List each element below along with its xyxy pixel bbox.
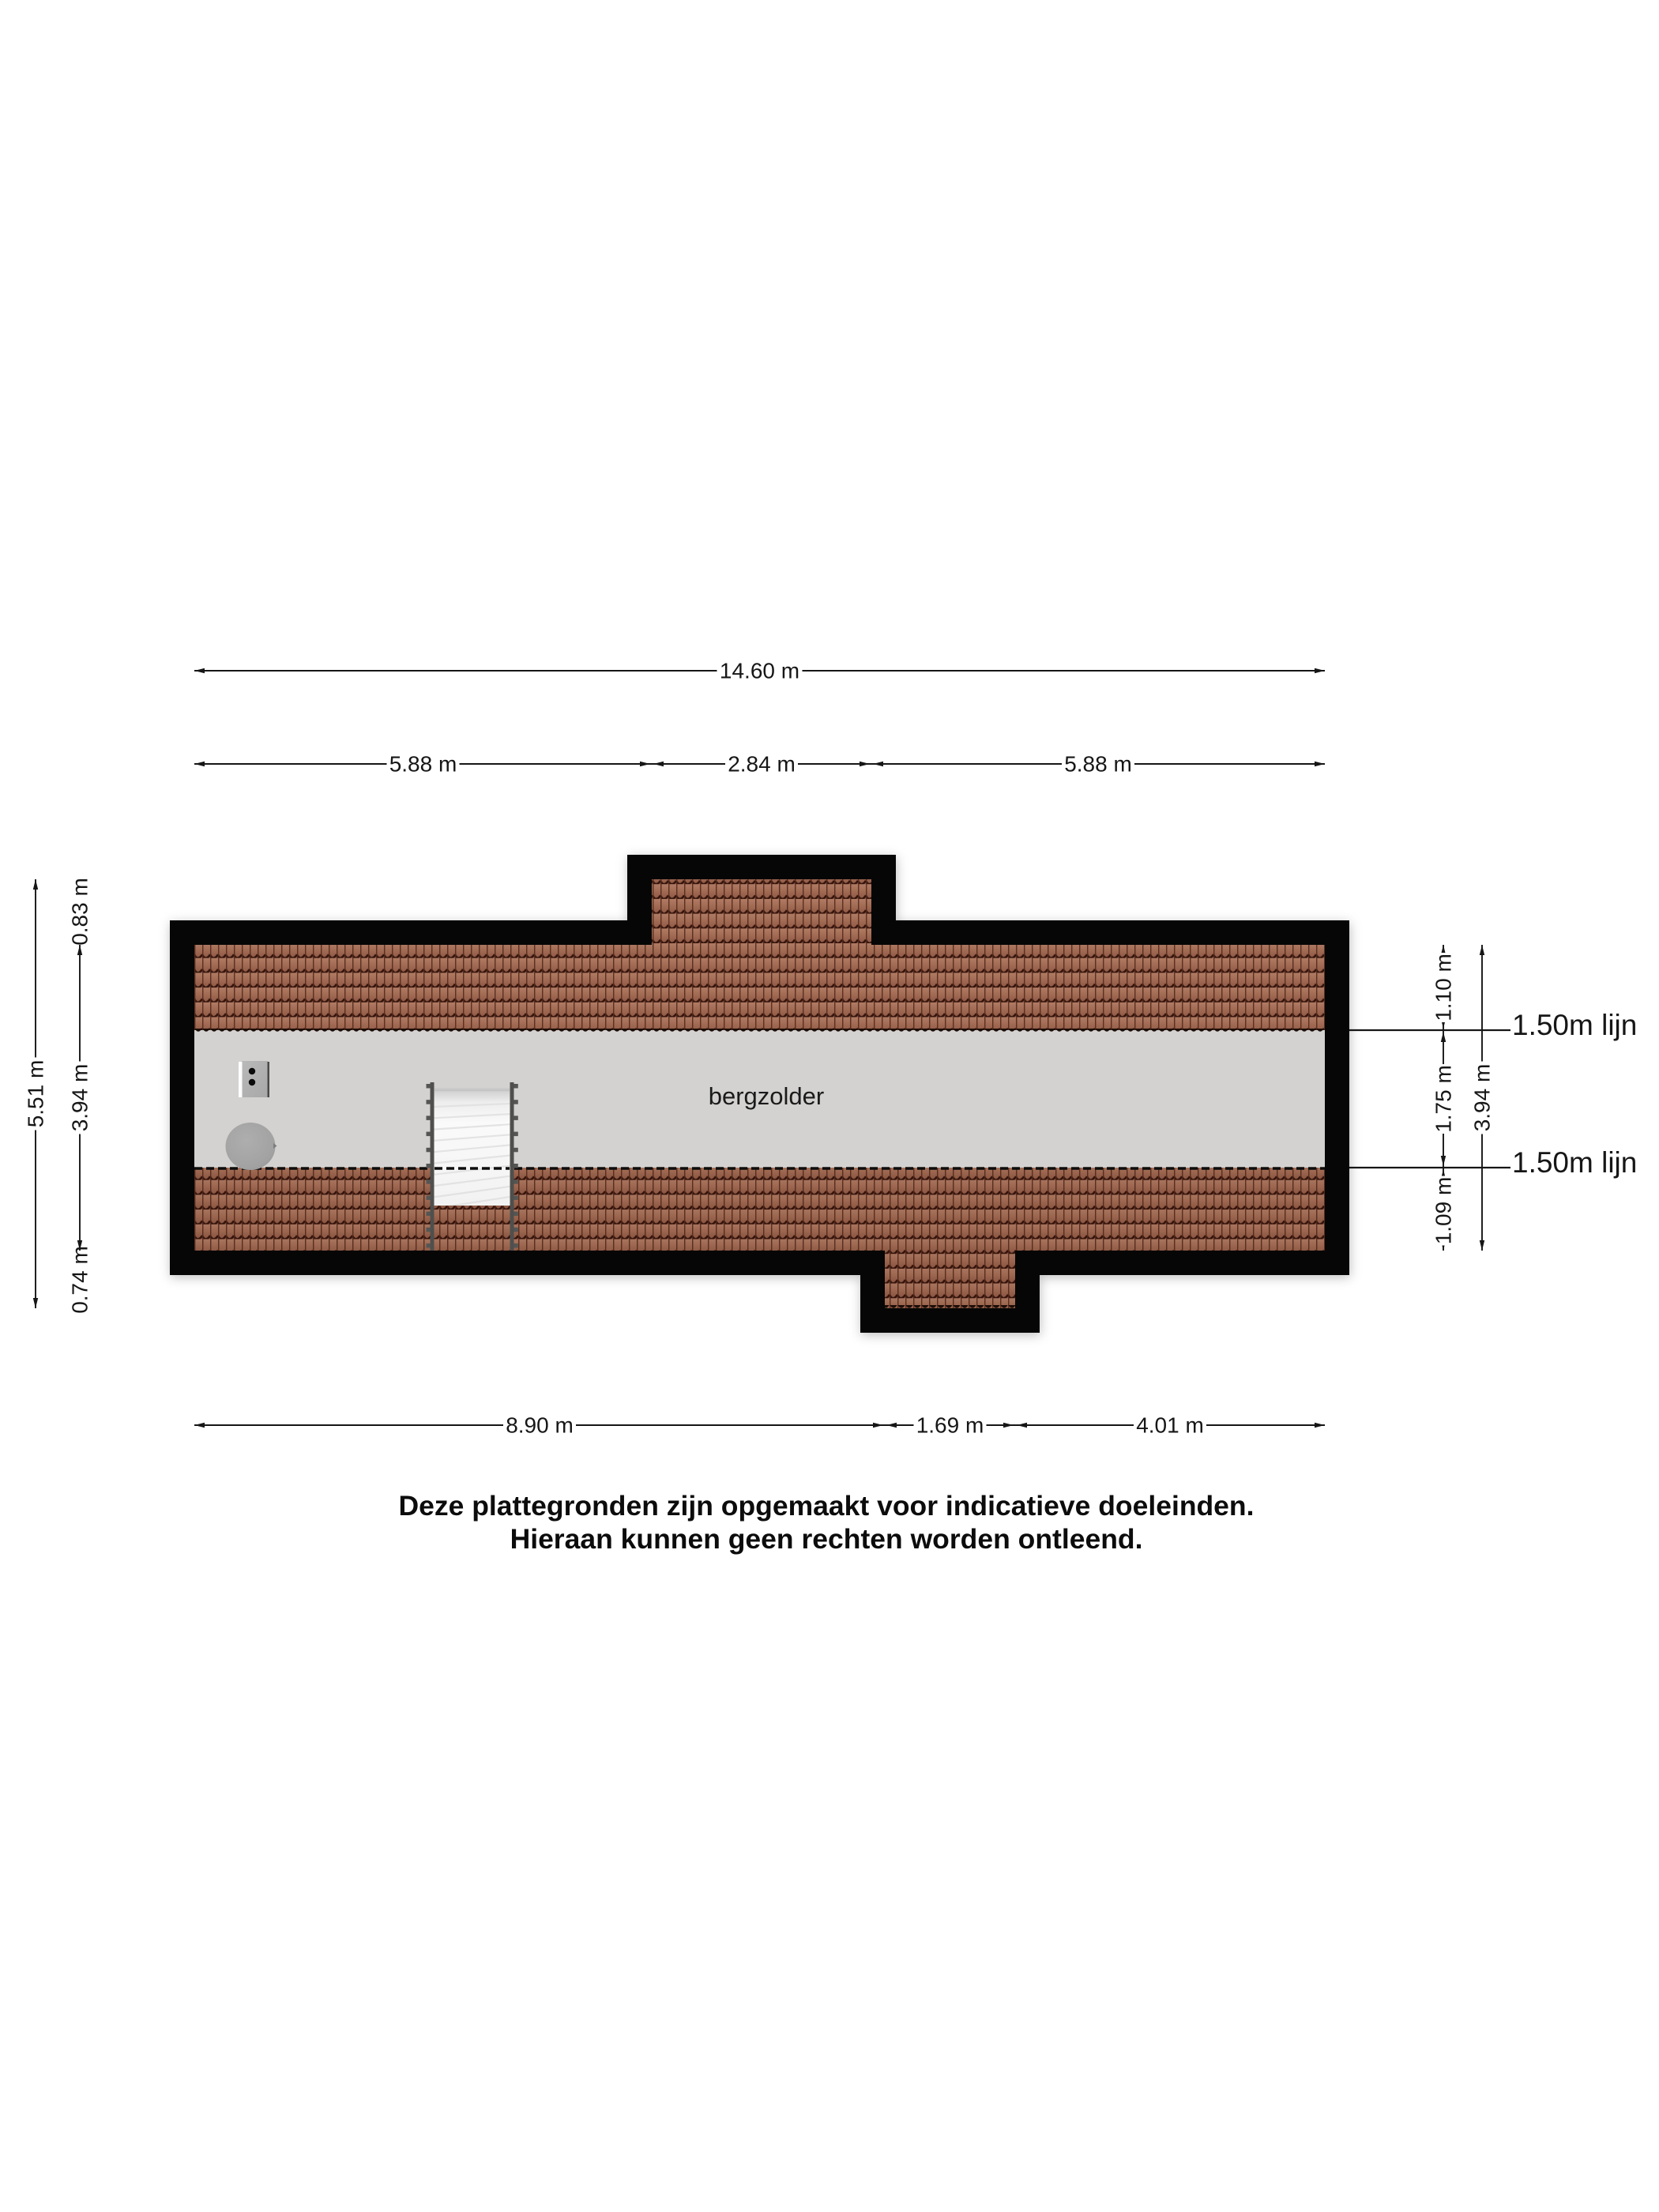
svg-text:1.75 m: 1.75 m xyxy=(1431,1065,1456,1133)
svg-text:0.83 m: 0.83 m xyxy=(68,878,92,946)
svg-text:5.88 m: 5.88 m xyxy=(1064,752,1132,777)
svg-text:Hieraan kunnen geen rechten wo: Hieraan kunnen geen rechten worden ontle… xyxy=(510,1523,1143,1555)
svg-text:4.01 m: 4.01 m xyxy=(1136,1413,1204,1438)
svg-text:Deze plattegronden zijn opgema: Deze plattegronden zijn opgemaakt voor i… xyxy=(399,1490,1255,1522)
svg-text:8.90 m: 8.90 m xyxy=(506,1413,574,1438)
svg-text:1.69 m: 1.69 m xyxy=(916,1413,984,1438)
svg-text:bergzolder: bergzolder xyxy=(709,1082,824,1110)
svg-text:14.60 m: 14.60 m xyxy=(720,659,799,683)
svg-text:0.74 m: 0.74 m xyxy=(68,1246,92,1314)
svg-text:2.84 m: 2.84 m xyxy=(728,752,796,777)
svg-text:1.50m lijn: 1.50m lijn xyxy=(1512,1146,1637,1179)
svg-text:5.51 m: 5.51 m xyxy=(24,1060,48,1128)
svg-text:3.94 m: 3.94 m xyxy=(68,1064,92,1132)
svg-text:1.10 m: 1.10 m xyxy=(1431,954,1456,1021)
svg-text:1.09 m: 1.09 m xyxy=(1431,1177,1456,1245)
svg-text:1.50m lijn: 1.50m lijn xyxy=(1512,1009,1637,1041)
svg-text:5.88 m: 5.88 m xyxy=(389,752,457,777)
svg-text:3.94 m: 3.94 m xyxy=(1470,1064,1495,1132)
